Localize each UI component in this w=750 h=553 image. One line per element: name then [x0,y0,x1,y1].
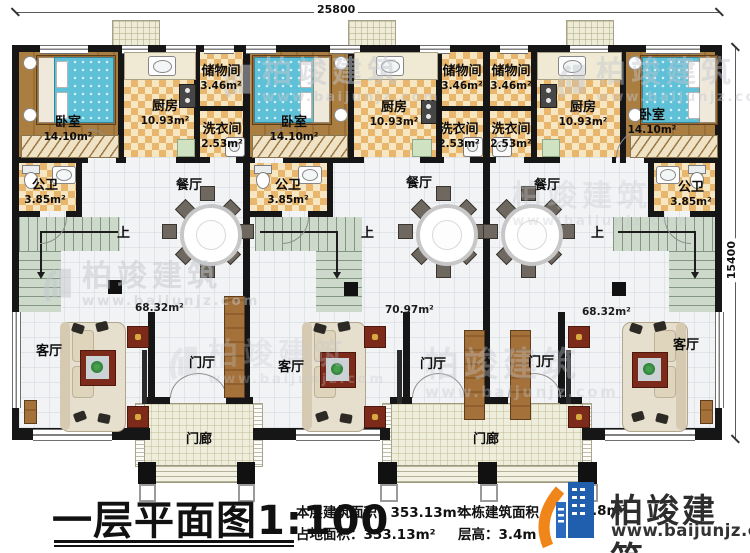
stair-up-label-3: 上 [591,222,604,241]
stat-building-area: 本栋建筑面积 [458,501,539,521]
stat-floor-height: 层高：3.4m [458,523,536,543]
unit-area-middle: 70.97m² [385,304,434,316]
stair-arrow [336,231,338,273]
kitchen-sink-icon [376,56,404,76]
wall-segment [441,106,483,111]
room-label-bath-1: 公卫3.85m² [10,178,80,206]
wall-segment [690,211,722,217]
stat-footprint-area: 占地面积：353.13m² [296,523,436,543]
room-label-bath-2: 公卫3.85m² [253,178,323,206]
wall-segment [199,106,243,111]
nightstand [334,108,348,122]
kitchen-sink-icon [558,56,586,76]
dining-table-set [162,186,252,276]
unit-area-right: 68.32m² [582,306,631,318]
stair-up-label-1: 上 [117,222,130,241]
window [715,312,724,408]
tv-side-table [364,326,386,348]
room-label-bedroom-2: 卧室14.10m² [259,115,329,143]
structural-column [612,282,626,296]
dining-table-set [398,186,488,276]
wall-segment [489,106,531,111]
room-label-porch-1: 门廊 [186,428,212,447]
stair-arrow-head [333,272,341,279]
wall-segment [327,163,333,217]
nightstand [628,56,642,70]
bed-pillow [300,61,312,88]
bed-headboard [699,57,716,123]
dining-table-set [483,186,573,276]
plant-icon [643,363,655,375]
wall-segment [403,312,410,403]
room-label-living-2: 客厅 [278,356,304,375]
window [500,45,528,54]
title-underline [54,545,294,547]
room-label-laundry-1: 洗衣间2.53m² [187,122,257,150]
stair-arrow-head [37,272,45,279]
room-label-storage-1: 储物间3.46m² [186,64,256,92]
stair-up-label-2: 上 [361,222,374,241]
window [204,45,234,54]
plant-icon [91,361,103,373]
porch-column [138,462,156,484]
room-label-kitchen-2: 厨房10.93m² [359,100,429,128]
window [12,312,21,408]
stair-arrow-head [691,272,699,279]
bay-window [112,20,160,48]
porch-column [237,462,255,484]
wall-segment [12,211,40,217]
room-label-bedroom-1: 卧室14.10m² [33,115,103,143]
tv-icon [397,350,402,404]
room-label-porch-2: 门廊 [473,428,499,447]
side-table [700,400,713,424]
stair-arrow [694,231,696,273]
wall-segment [648,163,654,217]
room-label-living-1: 客厅 [36,340,62,359]
tv-side-table [568,406,590,428]
bed-headboard [313,57,330,123]
title-underline [54,540,294,543]
tv-side-table [568,326,590,348]
room-label-bath-3: 公卫3.85m² [656,180,726,208]
nightstand [23,56,37,70]
window [40,45,88,54]
unit-area-left: 68.32m² [135,302,184,314]
side-table [24,400,37,424]
tv-side-table [127,326,149,348]
room-label-bedroom-3: 卧室14.10m² [617,108,687,136]
room-label-living-3: 客厅 [673,334,699,353]
kitchen-sink-icon [148,56,176,76]
top-dimension-label: 25800 [314,3,358,16]
room-label-dining-2: 餐厅 [406,172,432,191]
tv-side-table [127,406,149,428]
entry-cabinet [510,330,531,420]
room-label-kitchen-3: 厨房10.93m² [548,100,618,128]
porch-column-base [480,484,498,502]
staircase [669,251,715,312]
room-label-hall-2: 门厅 [420,353,446,372]
room-label-hall-1: 门厅 [189,352,215,371]
bay-window [566,20,614,48]
bed-pillow [56,61,68,88]
staircase [19,217,120,251]
wardrobe [630,135,718,158]
bed-pillow [688,92,700,119]
room-label-dining-1: 餐厅 [176,174,202,193]
brand-logo-icon [534,476,612,552]
entry-cabinet [464,330,485,420]
entry-cabinet [224,296,245,398]
wall-segment [176,157,210,163]
bed-pillow [688,61,700,88]
throw-pillow [339,413,352,424]
structural-column [108,280,122,294]
nightstand [334,56,348,70]
tv-side-table [364,406,386,428]
wall-segment [524,157,560,163]
stat-floor-area: 本层建筑面积：353.13m² [296,501,463,521]
room-label-storage-3: 储物间3.46m² [476,64,546,92]
brand-name: 柏竣建筑 [610,484,750,553]
floor-plan-page: 25800 15400 [0,0,750,553]
sofa-back [302,322,312,430]
structural-column [344,282,358,296]
porch-column [378,462,397,484]
tv-icon [142,350,147,404]
right-dimension-label: 15400 [725,238,738,282]
porch-column [478,462,497,484]
room-label-dining-3: 餐厅 [534,174,560,193]
window [646,45,700,54]
brand-url: www.baijunjz.com [611,521,750,540]
sofa-back [60,322,70,430]
wall-segment [148,312,155,403]
room-label-laundry-3: 洗衣间2.53m² [476,122,546,150]
window [246,45,276,54]
plant-icon [331,363,343,375]
top-dimension-line [15,12,720,13]
tv-icon [566,350,571,404]
bay-window [348,20,396,48]
bed-headboard [38,57,55,123]
room-label-hall-3: 门厅 [528,351,554,370]
